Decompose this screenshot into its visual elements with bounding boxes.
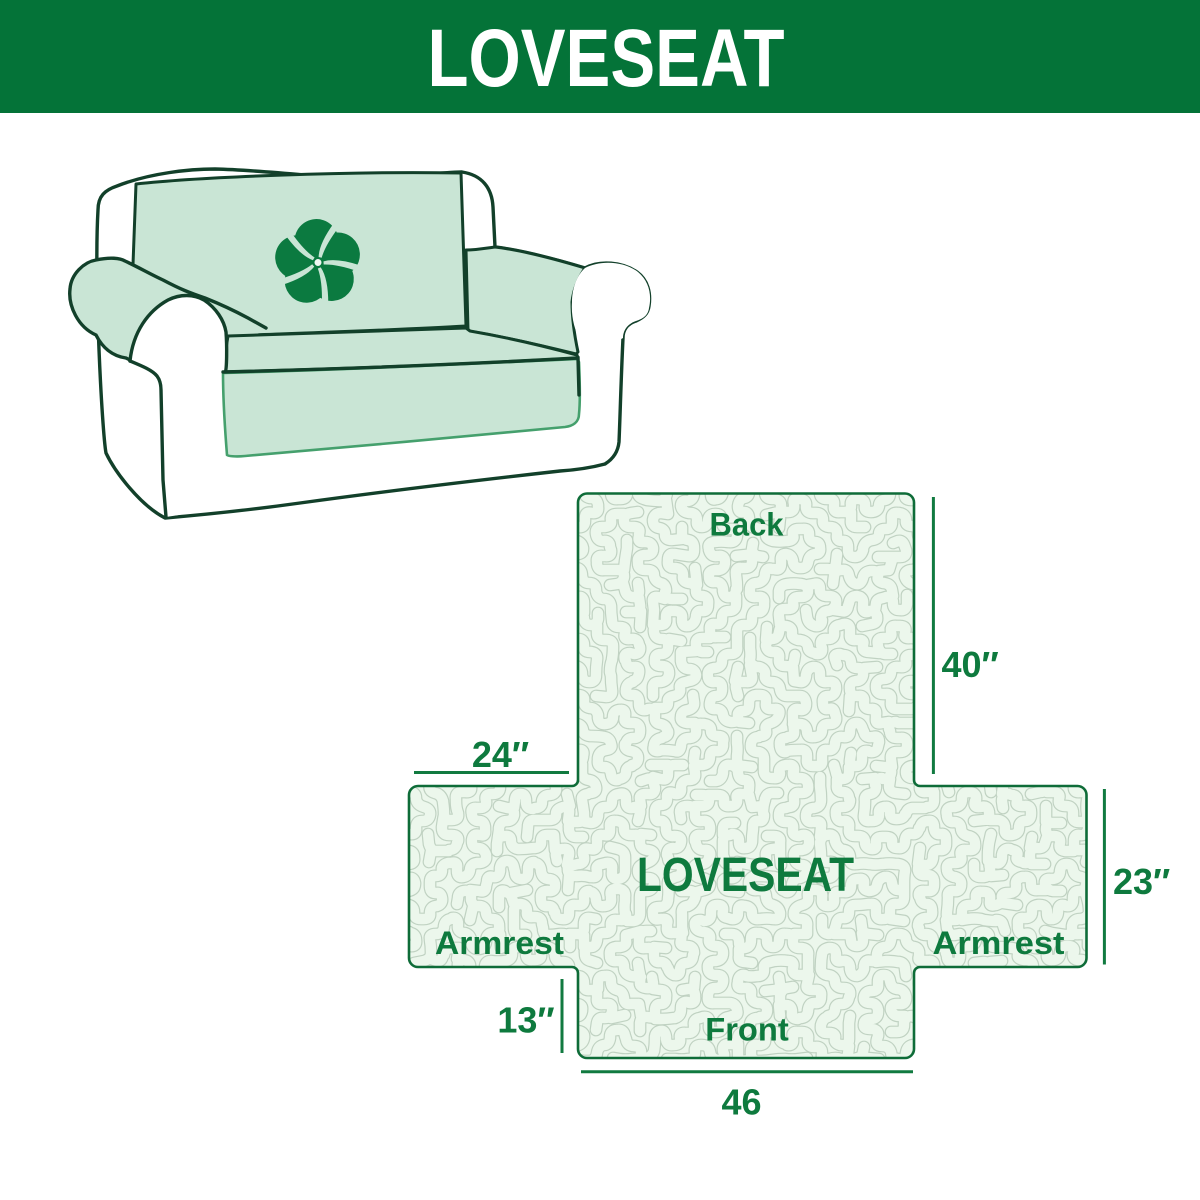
svg-text:Front: Front bbox=[705, 1012, 789, 1048]
svg-text:13″: 13″ bbox=[497, 1000, 554, 1041]
svg-text:LOVESEAT: LOVESEAT bbox=[637, 849, 854, 902]
svg-text:Back: Back bbox=[710, 507, 784, 543]
svg-text:Armrest: Armrest bbox=[933, 925, 1065, 961]
svg-text:46: 46 bbox=[721, 1082, 761, 1123]
svg-text:Armrest: Armrest bbox=[435, 925, 564, 961]
svg-text:40″: 40″ bbox=[942, 644, 999, 685]
svg-text:LOVESEAT: LOVESEAT bbox=[428, 13, 785, 104]
svg-text:24″: 24″ bbox=[472, 734, 529, 775]
svg-text:23″: 23″ bbox=[1113, 861, 1170, 902]
